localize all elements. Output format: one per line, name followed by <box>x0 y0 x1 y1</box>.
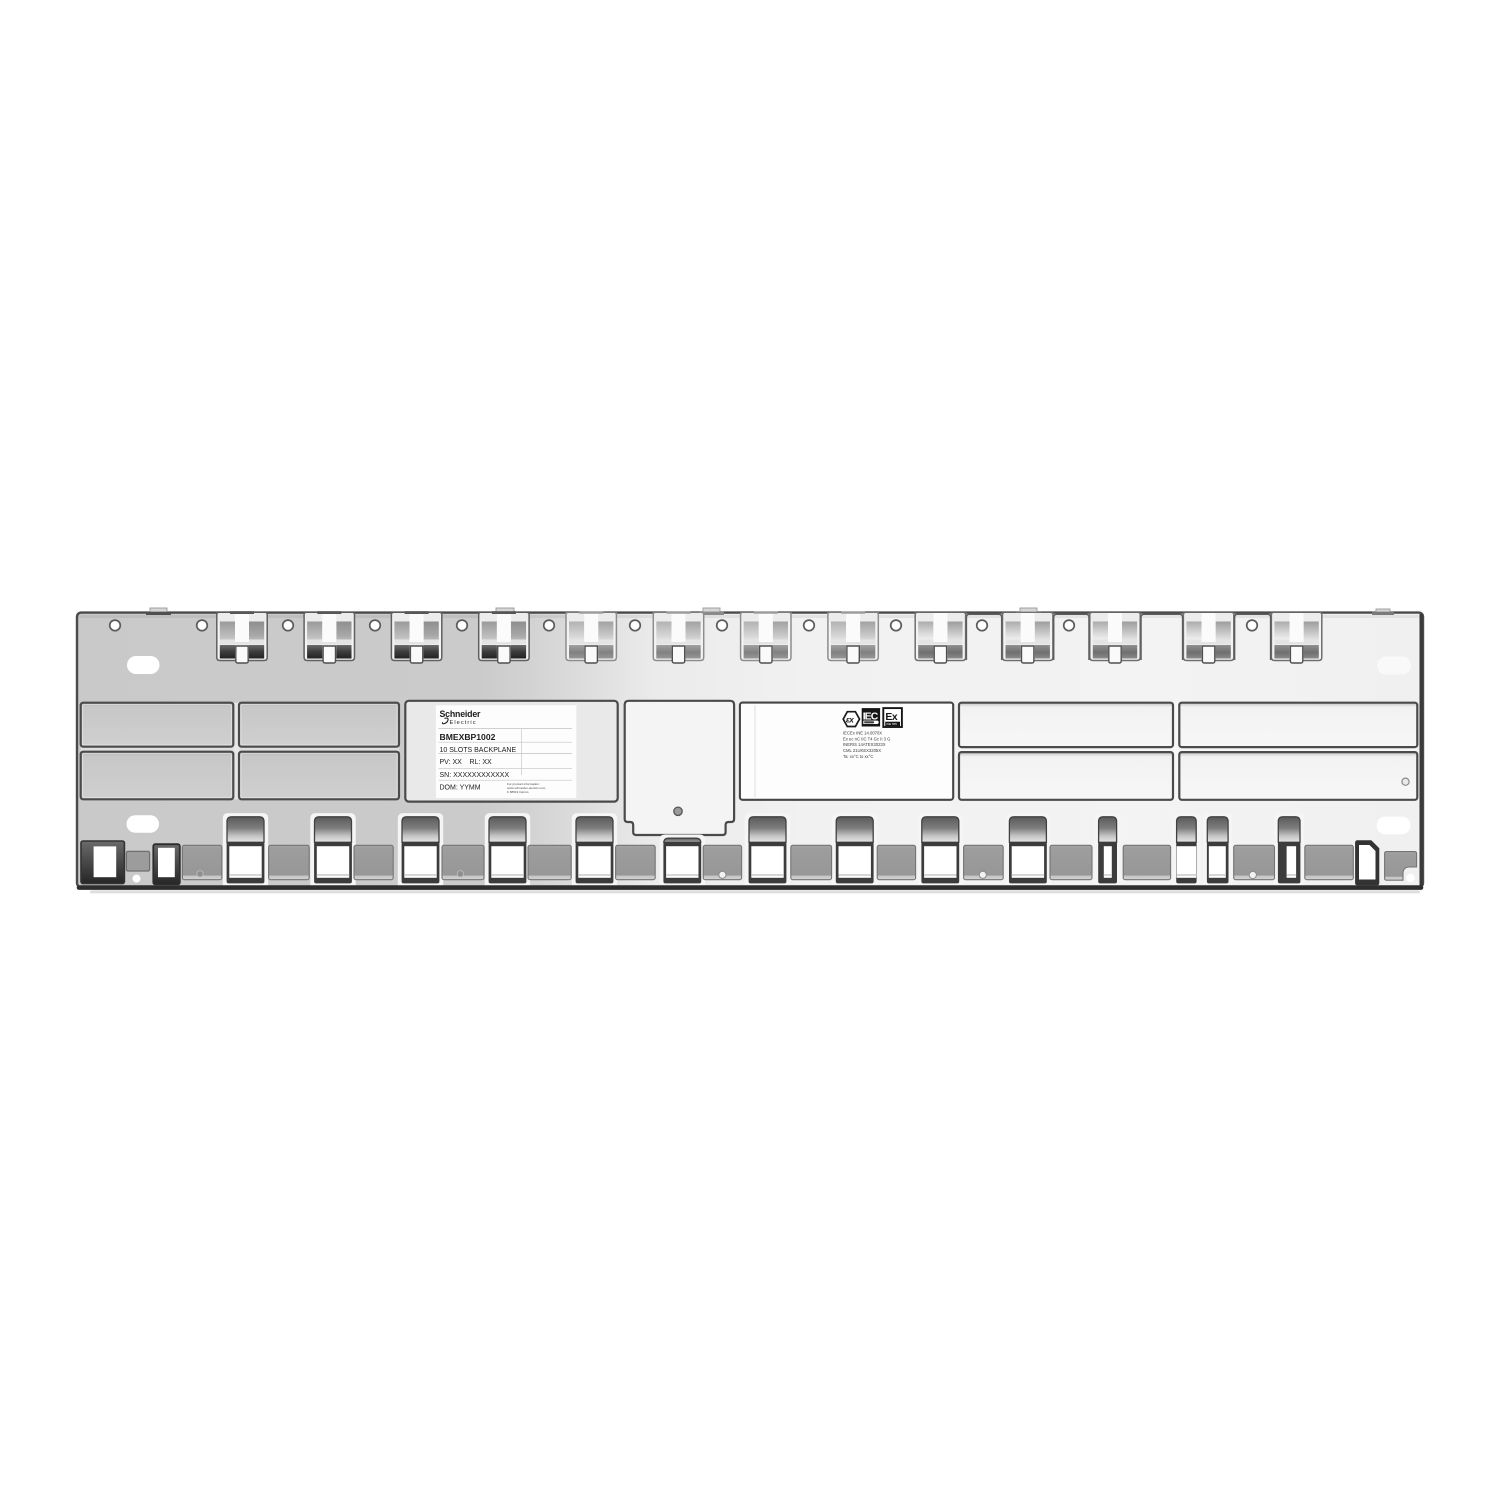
svg-text:CML 21UKEX3205X: CML 21UKEX3205X <box>843 748 881 753</box>
svg-text:RL: XX: RL: XX <box>470 759 493 766</box>
svg-text:Ex ec nC IIC T4 Gc II 3 G: Ex ec nC IIC T4 Gc II 3 G <box>843 736 890 741</box>
svg-text:F 88519 Carros: F 88519 Carros <box>507 790 529 794</box>
svg-text:εx: εx <box>846 716 854 725</box>
svg-text:PV: XX: PV: XX <box>440 759 463 766</box>
svg-text:IECEx INE 14.0070X: IECEx INE 14.0070X <box>843 730 882 735</box>
svg-text:10 SLOTS BACKPLANE: 10 SLOTS BACKPLANE <box>440 747 517 754</box>
svg-text:Electric: Electric <box>450 720 477 726</box>
svg-text:INERIS 14ATEX3023X: INERIS 14ATEX3023X <box>843 742 886 747</box>
svg-text:INE 555: INE 555 <box>886 722 897 726</box>
svg-text:Ta: xx°C to xx°C: Ta: xx°C to xx°C <box>843 754 873 759</box>
svg-text:SN: XXXXXXXXXXXX: SN: XXXXXXXXXXXX <box>440 772 510 779</box>
svg-text:DOM: YYMM: DOM: YYMM <box>440 784 481 791</box>
svg-text:BMEXBP1002: BMEXBP1002 <box>440 732 496 742</box>
